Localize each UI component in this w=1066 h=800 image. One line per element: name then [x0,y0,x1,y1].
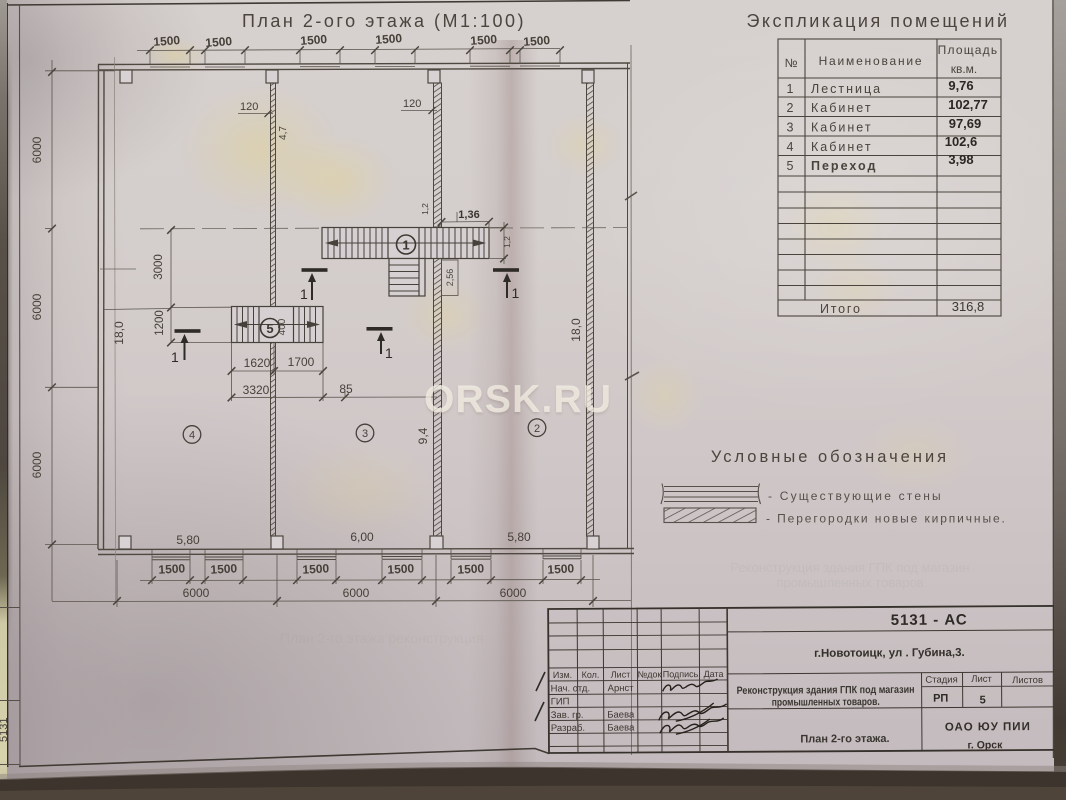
svg-text:5131: 5131 [0,718,10,742]
